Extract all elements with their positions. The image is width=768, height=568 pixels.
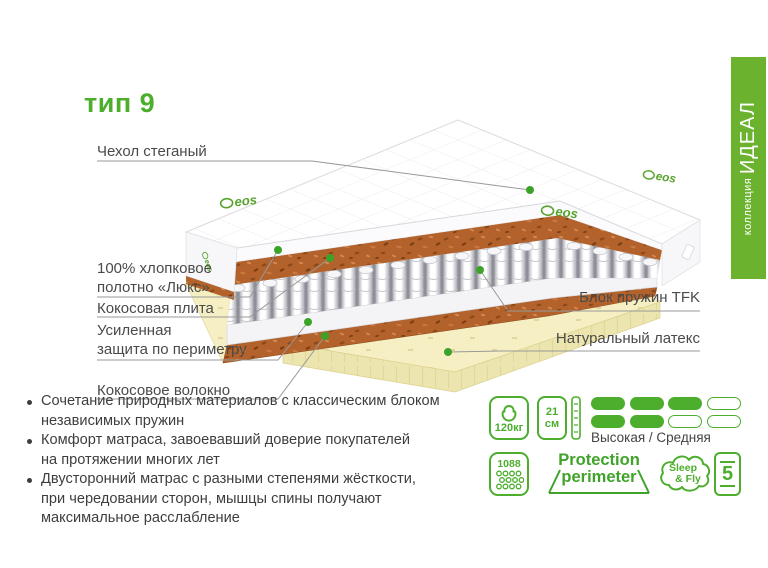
firmness-bar [707, 397, 741, 410]
banner-collection-name: ИДЕАЛ [737, 101, 759, 174]
height-badge: 21 см [537, 396, 567, 440]
feature-item: Сочетание природных материалов с классич… [24, 392, 480, 431]
springs-count-badge: 1088 [489, 452, 529, 496]
firmness-bar [668, 397, 702, 410]
label-cotton: 100% хлопковое полотно «Люкс» [97, 259, 212, 297]
firmness-bar [591, 415, 625, 428]
firmness-label: Высокая / Средняя [591, 430, 711, 445]
ruler-icon [571, 396, 581, 440]
eos-leaf-icon [220, 198, 233, 208]
svg-text:eos: eos [655, 170, 677, 186]
label-perimeter: Усиленная защита по периметру [97, 321, 247, 359]
springs-pattern-icon [494, 470, 524, 491]
perimeter-frame-icon [546, 468, 652, 496]
protection-line1: Protection [546, 452, 652, 469]
warranty-bottom-line [720, 485, 735, 487]
warranty-badge: 5 [714, 452, 741, 496]
eos-leaf-icon [643, 170, 655, 180]
protection-badge: Protection perimeter [546, 452, 652, 498]
banner-space [742, 174, 754, 178]
feature-item: Комфорт матраса, завоевавший доверие пок… [24, 431, 480, 470]
label-latex: Натуральный латекс [430, 329, 700, 348]
firmness-bar [707, 415, 741, 428]
collection-banner: коллекция ИДЕАЛ [731, 57, 766, 279]
label-springs: Блок пружин TFK [430, 288, 700, 307]
label-coir-plate: Кокосовая плита [97, 299, 214, 318]
springs-count: 1088 [497, 458, 520, 470]
cloud-icon: Sleep & Fly [658, 450, 712, 498]
height-value: 21 [546, 406, 558, 418]
svg-text:eos: eos [555, 204, 579, 222]
weight-badge: 120кг [489, 396, 529, 440]
sleep-fly-logo: Sleep & Fly [658, 450, 712, 498]
product-infographic: eos eos eos eos [0, 0, 768, 568]
svg-text:eos: eos [234, 192, 258, 209]
fly-text: & Fly [675, 473, 701, 485]
feature-item: Двусторонний матрас с разными степенями … [24, 470, 480, 529]
firmness-bar [591, 397, 625, 410]
features-list: Сочетание природных материалов с классич… [24, 392, 480, 529]
label-cover: Чехол стеганый [97, 142, 207, 161]
banner-collection-label: коллекция [742, 178, 754, 235]
firmness-bar [630, 415, 664, 428]
height-unit: см [545, 418, 559, 430]
firmness-bar [668, 415, 702, 428]
weight-value: 120кг [495, 422, 523, 434]
firmness-bar [630, 397, 664, 410]
eos-logo: eos [642, 168, 677, 186]
kettlebell-icon [498, 403, 520, 422]
page-title: тип 9 [84, 88, 155, 119]
warranty-years: 5 [722, 463, 733, 485]
